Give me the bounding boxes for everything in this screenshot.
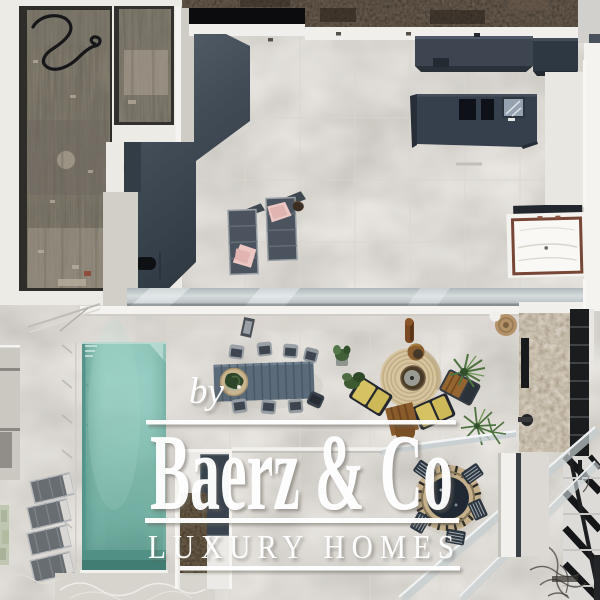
svg-text:Baerz & Co: Baerz & Co bbox=[150, 413, 453, 533]
svg-text:LUXURY HOMES: LUXURY HOMES bbox=[148, 529, 461, 566]
svg-text:by: by bbox=[189, 371, 225, 412]
